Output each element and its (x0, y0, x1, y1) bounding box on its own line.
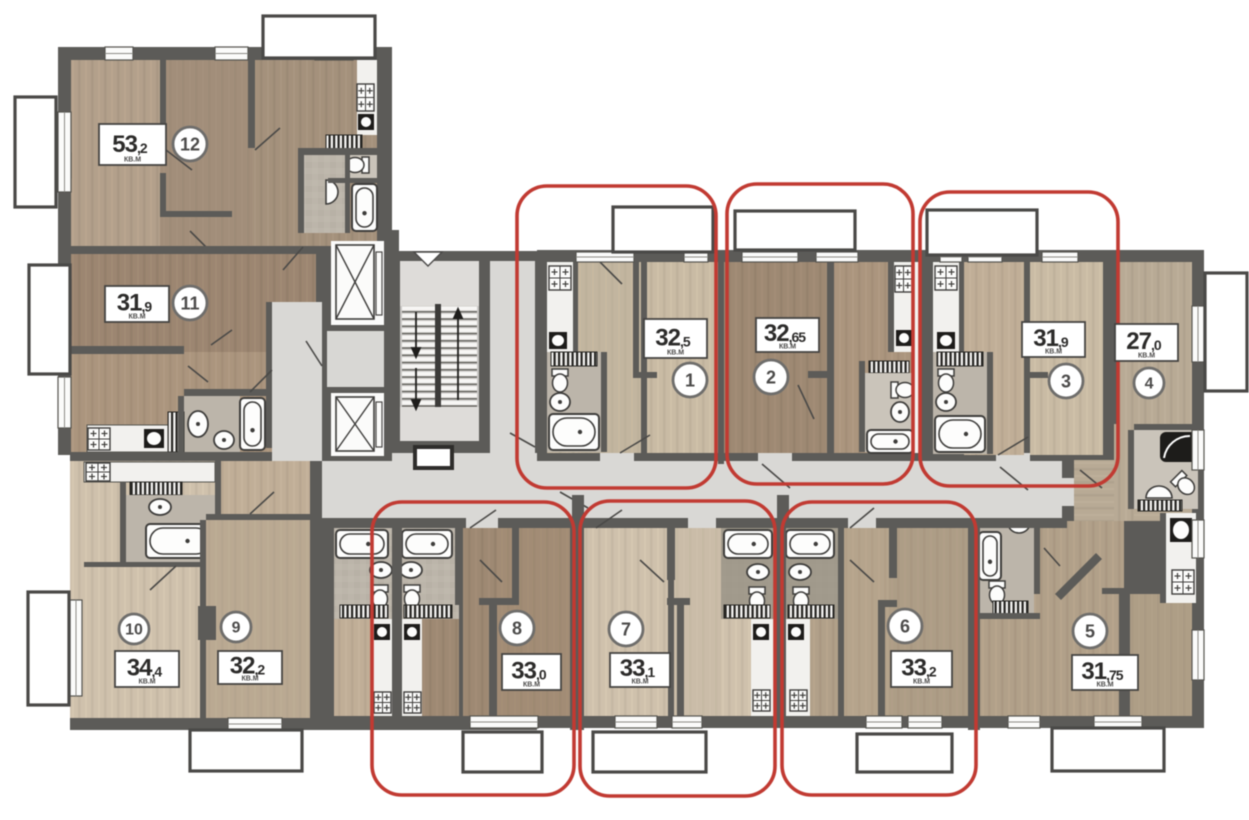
svg-text:КВ.М: КВ.М (124, 157, 141, 164)
svg-text:КВ.М: КВ.М (631, 679, 648, 686)
svg-text:4: 4 (1145, 376, 1154, 393)
svg-text:КВ.М: КВ.М (138, 679, 155, 686)
svg-text:КВ.М: КВ.М (667, 350, 684, 357)
svg-text:КВ.М: КВ.М (128, 314, 145, 321)
svg-text:КВ.М: КВ.М (1138, 353, 1155, 360)
svg-text:12: 12 (180, 134, 200, 154)
svg-text:КВ.М: КВ.М (913, 679, 930, 686)
svg-text:КВ.М: КВ.М (1045, 349, 1062, 356)
svg-text:КВ.М: КВ.М (241, 676, 258, 683)
svg-text:КВ.М: КВ.М (523, 682, 540, 689)
svg-text:КВ.М: КВ.М (779, 344, 796, 351)
svg-text:9: 9 (232, 620, 241, 637)
svg-text:1: 1 (685, 370, 695, 390)
svg-text:8: 8 (512, 618, 522, 638)
svg-text:5: 5 (1085, 621, 1095, 641)
svg-text:7: 7 (621, 619, 631, 639)
svg-text:11: 11 (180, 293, 199, 313)
svg-text:2: 2 (766, 367, 776, 387)
svg-text:3: 3 (1061, 371, 1071, 391)
svg-text:КВ.М: КВ.М (1096, 682, 1113, 689)
svg-text:6: 6 (900, 616, 910, 636)
svg-text:10: 10 (125, 622, 143, 639)
